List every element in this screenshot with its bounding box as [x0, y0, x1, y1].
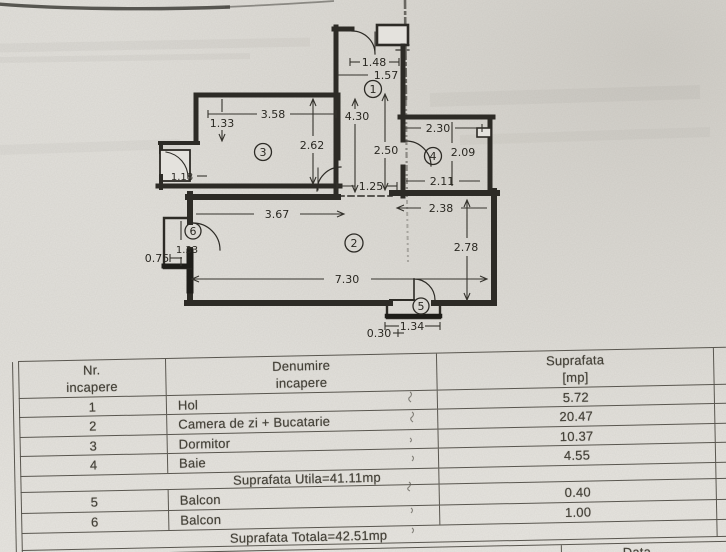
dim-bedroom-width: 3.58 [261, 108, 286, 121]
room-number-2: 2 [351, 237, 358, 250]
dimension-lines [170, 58, 487, 337]
header-name: Denumire incapere [166, 354, 438, 395]
fold-line [405, 0, 408, 262]
cell-nr: 1 [19, 396, 167, 417]
cell-nr: 5 [21, 490, 169, 513]
walls [158, 25, 497, 318]
dim-bedroom-door: 1.18 [171, 172, 193, 183]
cell-nr: 2 [19, 415, 167, 437]
dim-bath-top-width: 2.30 [426, 122, 451, 135]
footer-data-label: Data [597, 544, 677, 552]
area-table: Nr. incapere Denumire incapere Suprafata… [18, 347, 726, 552]
dim-balcony6-height: 1.33 [176, 245, 198, 256]
room-number-1: 1 [370, 83, 377, 96]
dim-bedroom-left-height: 1.33 [210, 117, 235, 130]
header-nr: Nr. incapere [18, 359, 167, 398]
dim-living-top-left: 3.67 [265, 208, 290, 221]
room-number-3: 3 [260, 146, 267, 159]
dim-bath-right-height: 2.09 [451, 146, 476, 159]
dim-bath-bottom-width: 2.11 [430, 175, 455, 188]
dim-hall-top-width: 1.48 [362, 56, 387, 69]
table-outer-left-border [12, 362, 17, 552]
dim-hall-width: 1.57 [374, 69, 399, 82]
dim-hall-opening: 1.25 [359, 180, 384, 193]
dim-bedroom-right-height: 2.62 [300, 139, 325, 152]
footer-divider [561, 545, 563, 552]
cell-nr: 3 [20, 435, 168, 456]
room-number-6: 6 [190, 225, 197, 238]
dim-hall-lower-height: 2.50 [374, 144, 399, 157]
dim-living-top-right: 2.38 [429, 202, 454, 215]
room-numbers: 1 2 3 4 5 6 [185, 81, 442, 315]
cell-nr: 6 [21, 511, 169, 533]
dim-balcony5-depth: 0.30 [367, 327, 392, 340]
dim-balcony6-width: 0.75 [145, 252, 170, 265]
dimension-labels: 1.48 1.57 4.30 2.50 1.25 3.58 1.33 2.62 … [145, 56, 479, 340]
page-edge-artifact [0, 1, 334, 9]
room-number-5: 5 [418, 300, 425, 313]
room-number-4: 4 [430, 150, 437, 163]
scanned-floorplan-document: 1.48 1.57 4.30 2.50 1.25 3.58 1.33 2.62 … [0, 0, 726, 552]
dim-balcony5-width: 1.34 [400, 320, 425, 333]
header-nr-line2: incapere [18, 377, 165, 397]
header-area: Suprafata [mp] [437, 348, 714, 390]
dim-living-right-height: 2.78 [454, 241, 479, 254]
dim-hall-height: 4.30 [345, 110, 370, 123]
dim-living-bottom-width: 7.30 [335, 273, 360, 286]
scan-smudges [0, 42, 710, 150]
cell-nr: 4 [20, 454, 168, 476]
